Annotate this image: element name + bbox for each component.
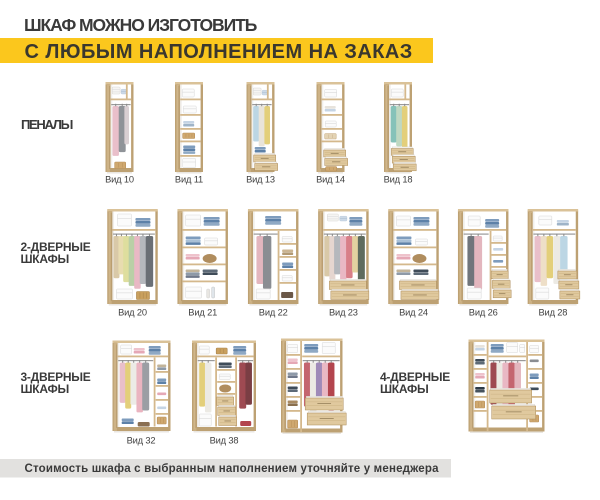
svg-text:Вид 28: Вид 28	[538, 308, 567, 318]
svg-text:ШКАФ МОЖНО ИЗГОТОВИТЬ: ШКАФ МОЖНО ИЗГОТОВИТЬ	[24, 15, 257, 35]
svg-text:Вид 10: Вид 10	[105, 175, 134, 185]
svg-text:Вид 14: Вид 14	[316, 175, 345, 185]
svg-text:Вид 38: Вид 38	[210, 436, 239, 446]
svg-text:Вид 22: Вид 22	[259, 308, 288, 318]
svg-text:ШКАФЫ: ШКАФЫ	[21, 252, 70, 266]
svg-text:Вид 26: Вид 26	[469, 308, 498, 318]
svg-text:Вид 21: Вид 21	[188, 308, 217, 318]
svg-text:Вид 23: Вид 23	[329, 308, 358, 318]
svg-text:ШКАФЫ: ШКАФЫ	[380, 382, 429, 396]
svg-text:Вид 18: Вид 18	[384, 175, 413, 185]
svg-text:Вид 20: Вид 20	[118, 308, 147, 318]
svg-text:ШКАФЫ: ШКАФЫ	[21, 382, 70, 396]
svg-text:Вид 11: Вид 11	[175, 175, 203, 185]
svg-text:Стоимость шкафа с выбранным на: Стоимость шкафа с выбранным наполнением …	[25, 463, 440, 475]
svg-text:ПЕНАЛЫ: ПЕНАЛЫ	[21, 117, 73, 132]
svg-text:С ЛЮБЫМ НАПОЛНЕНИЕМ НА ЗАКАЗ: С ЛЮБЫМ НАПОЛНЕНИЕМ НА ЗАКАЗ	[25, 41, 413, 63]
svg-text:Вид 13: Вид 13	[246, 175, 275, 185]
svg-text:Вид 32: Вид 32	[127, 436, 156, 446]
svg-text:Вид 24: Вид 24	[399, 308, 428, 318]
